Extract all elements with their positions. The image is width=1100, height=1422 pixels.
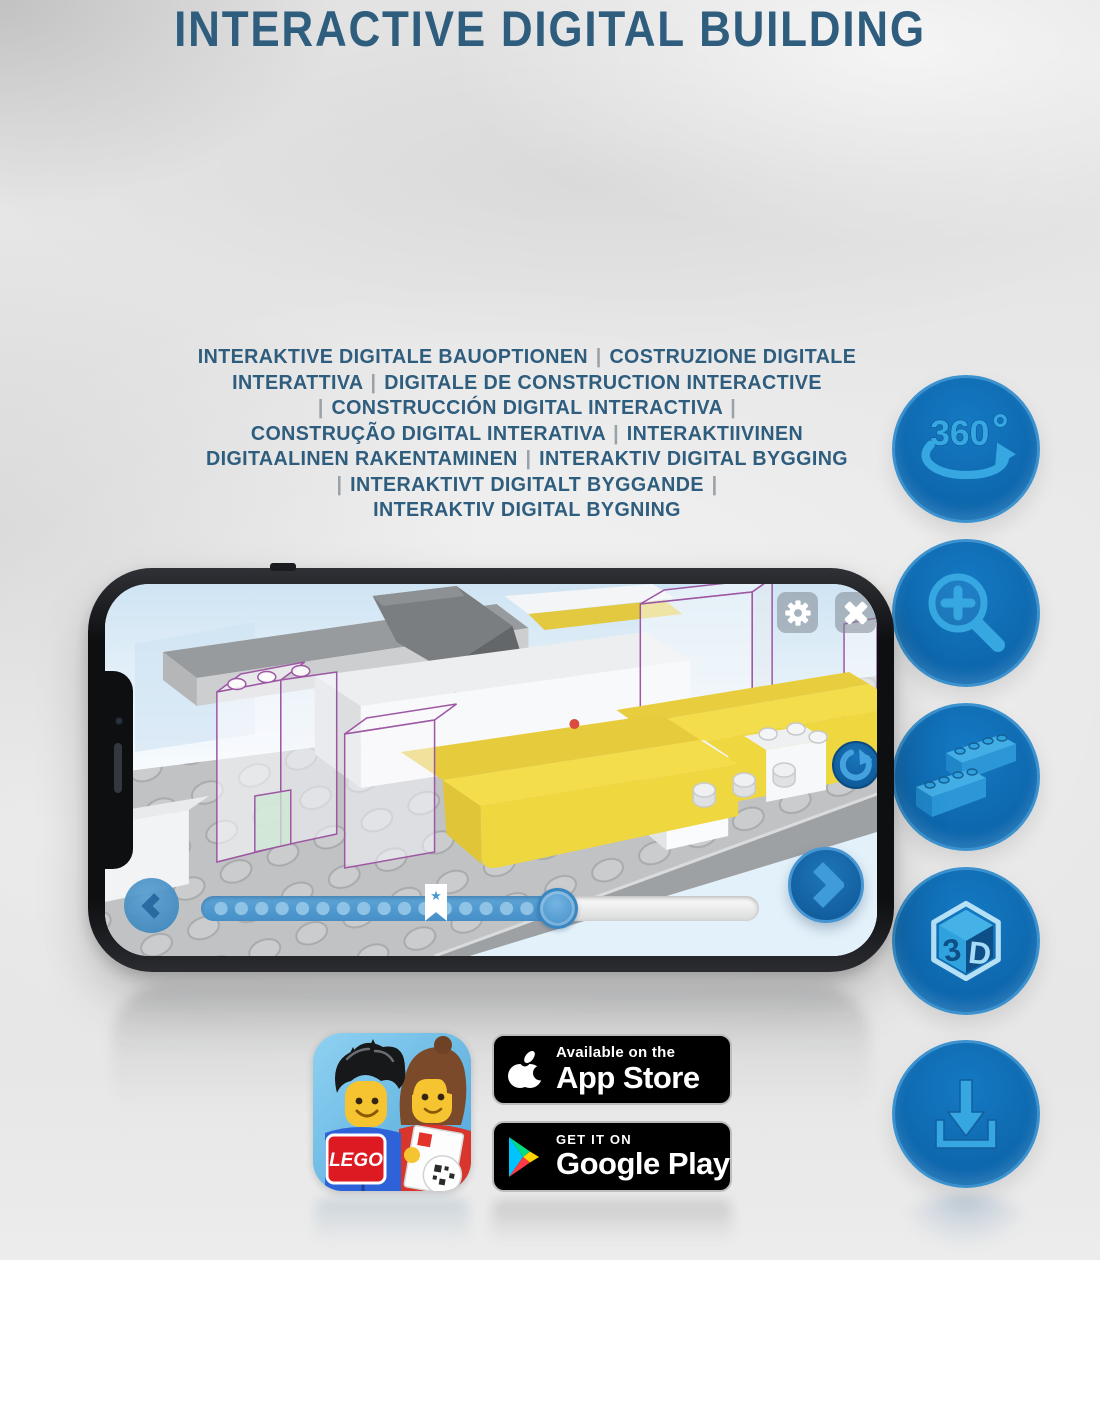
phone-reflection xyxy=(112,984,870,1134)
app-store-name: App Store xyxy=(556,1062,700,1094)
lego-app-screen[interactable]: ★ xyxy=(105,584,877,956)
rotate-view-button[interactable] xyxy=(832,741,877,789)
settings-button[interactable] xyxy=(777,592,818,633)
subtitle-line: INTERAKTIV DIGITAL BYGNING xyxy=(124,497,930,523)
lego-logo: LEGO xyxy=(327,1135,385,1183)
google-play-name: Google Play xyxy=(556,1148,730,1180)
camera-icon xyxy=(115,717,123,725)
apple-icon xyxy=(494,1046,556,1094)
brick-stack-icon xyxy=(892,703,1040,851)
lego-icon-reflection xyxy=(315,1198,469,1242)
lego-app-icon[interactable]: LEGO xyxy=(313,1033,471,1191)
page-title: INTERACTIVE DIGITAL BUILDING xyxy=(66,0,1034,58)
subtitle-line: DIGITAALINEN RAKENTAMINEN | INTERAKTIV D… xyxy=(124,446,930,472)
subtitle-line: INTERAKTIVE DIGITALE BAUOPTIONEN | COSTR… xyxy=(124,344,930,370)
svg-text:LEGO: LEGO xyxy=(329,1150,383,1171)
red-accent-piece xyxy=(569,719,579,729)
build-progress-bar[interactable] xyxy=(201,896,759,921)
close-button[interactable] xyxy=(835,592,876,633)
gear-icon xyxy=(784,599,812,627)
lower-brick xyxy=(916,769,986,817)
360-rotation-icon: 360 ° xyxy=(892,375,1040,523)
phone-side-button xyxy=(270,563,296,571)
download-icon xyxy=(892,1040,1040,1188)
svg-text:360: 360 xyxy=(930,414,989,453)
google-play-badge[interactable]: GET IT ON Google Play xyxy=(492,1121,732,1192)
next-step-button[interactable] xyxy=(788,847,864,923)
badges-reflection xyxy=(492,1200,732,1242)
progress-slider-handle[interactable] xyxy=(537,888,578,929)
chevron-right-icon xyxy=(808,859,844,911)
smartphone: ★ xyxy=(88,568,894,972)
subtitle-line: CONSTRUÇÃO DIGITAL INTERATIVA | INTERAKT… xyxy=(124,421,930,447)
zoom-in-icon xyxy=(892,539,1040,687)
close-icon xyxy=(843,600,869,626)
star-icon: ★ xyxy=(430,884,442,908)
google-play-icon xyxy=(494,1137,556,1177)
previous-step-button[interactable] xyxy=(124,878,179,933)
lego-app-artwork: LEGO xyxy=(313,1033,471,1191)
google-play-tagline: GET IT ON xyxy=(556,1133,730,1147)
subtitle-line: | INTERAKTIVT DIGITALT BYGGANDE | xyxy=(124,472,930,498)
marketing-image: INTERACTIVE DIGITAL BUILDING INTERAKTIVE… xyxy=(0,0,1100,1422)
subtitle-line: | CONSTRUCCIÓN DIGITAL INTERACTIVA | xyxy=(124,395,930,421)
app-store-tagline: Available on the xyxy=(556,1045,700,1061)
3d-cube-icon: 3 D xyxy=(892,867,1040,1015)
icon-reflection xyxy=(898,1196,1034,1248)
speaker-icon xyxy=(114,743,122,793)
subtitle-multilingual: INTERAKTIVE DIGITALE BAUOPTIONEN | COSTR… xyxy=(124,344,930,523)
subtitle-line: INTERATTIVA | DIGITALE DE CONSTRUCTION I… xyxy=(124,370,930,396)
phone-notch xyxy=(105,671,133,869)
rotate-cw-icon xyxy=(840,749,872,781)
app-store-badge[interactable]: Available on the App Store xyxy=(492,1034,732,1105)
step-dots xyxy=(211,896,551,921)
chevron-left-icon xyxy=(139,891,165,921)
svg-text:D: D xyxy=(967,935,993,972)
